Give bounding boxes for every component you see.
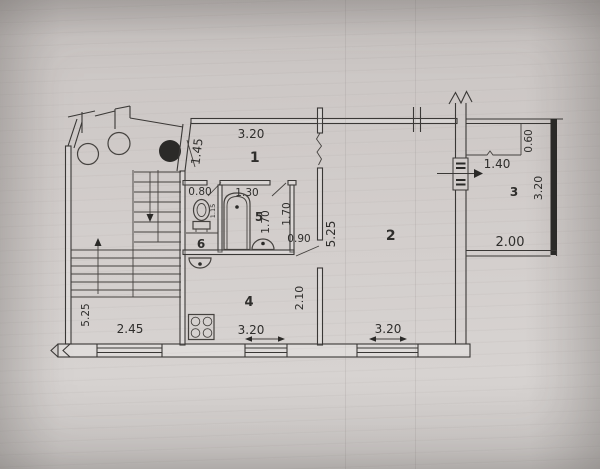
- room-number-wc: 6: [197, 237, 205, 251]
- wc-6: 0.80 1.15 6: [186, 183, 222, 253]
- top-wall: [191, 119, 457, 124]
- bathtub-icon: [224, 193, 250, 250]
- dim-corridor-door-width: 0.90: [287, 233, 310, 245]
- entrance-porch: [68, 106, 183, 165]
- room-number-hall: 1: [250, 150, 260, 166]
- bathroom-bottom-wall: [183, 250, 294, 255]
- room-number-kitchen: 4: [244, 295, 253, 310]
- dimension-arrow-icon: [245, 336, 285, 342]
- toilet-icon: [193, 200, 210, 233]
- paper-crease: [345, 0, 346, 469]
- left-wall: [66, 146, 72, 344]
- stove-icon: [189, 315, 215, 340]
- paper-crease: [415, 0, 416, 469]
- dim-wc-depth: 1.15: [209, 204, 217, 218]
- wall-segment: [318, 168, 323, 240]
- dim-hall-width: 3.20: [238, 127, 265, 141]
- dim-stairwell-width: 2.45: [117, 322, 144, 336]
- wc-bath-divider-wall: [218, 185, 222, 252]
- floor-plan-drawing: 5.25 2.45 3.20 1 1.45: [0, 0, 600, 469]
- dim-kitchen-depth: 2.10: [293, 286, 306, 311]
- scanned-floor-plan-photo: 5.25 2.45 3.20 1 1.45: [0, 0, 600, 469]
- wall-break-symbol: [449, 92, 472, 105]
- balcony-3: 0.60 1.40 3 3.20 2.00: [466, 119, 563, 256]
- garbage-chute-icon: [159, 140, 181, 162]
- balcony-wall: [456, 103, 467, 344]
- balcony-top-edge: [466, 119, 563, 124]
- balcony-bottom-edge: [466, 251, 557, 257]
- balcony-rail: [551, 119, 558, 255]
- wall-segment: [318, 268, 323, 345]
- hall-room-1: 3.20 1 1.45: [183, 127, 296, 185]
- dim-balcony-closet-depth: 0.60: [523, 129, 535, 152]
- ventilation-shaft-icon: [78, 144, 99, 165]
- dim-living-depth: 5.25: [324, 221, 338, 248]
- living-room-2: 2 5.25 3.20: [324, 221, 407, 342]
- porch-wall: [95, 106, 130, 129]
- dim-balcony-width-top: 1.40: [484, 157, 511, 171]
- dim-balcony-depth: 3.20: [532, 176, 545, 201]
- balcony-exit: [437, 158, 483, 190]
- wash-basin-icon: [252, 239, 274, 249]
- wall-break-symbol: [317, 133, 322, 165]
- dimension-arrow-icon: [369, 336, 407, 342]
- bathroom-door-leaf: [272, 183, 286, 196]
- dim-kitchen-width: 3.20: [238, 323, 265, 337]
- wall-segment: [318, 108, 323, 133]
- stairs: [71, 170, 181, 297]
- dim-stairwell-depth: 5.25: [80, 303, 92, 326]
- kitchen-sink-icon: [189, 258, 211, 268]
- balcony-closet: [466, 124, 521, 155]
- dim-bathroom-width: 1.30: [235, 187, 258, 199]
- porch-wall: [68, 119, 82, 148]
- dim-wc-width: 0.80: [188, 186, 211, 198]
- room-number-balcony: 3: [510, 185, 518, 199]
- porch-wall: [68, 111, 95, 133]
- dim-corridor-depth: 1.70: [281, 202, 293, 225]
- kitchen-4: 4 3.20 2.10: [189, 258, 307, 342]
- dim-balcony-width-bottom: 2.00: [496, 235, 525, 250]
- porch-wall: [130, 118, 183, 127]
- corridor: 1.70 0.90: [281, 202, 311, 245]
- dim-living-width: 3.20: [375, 322, 402, 336]
- door-leaf: [296, 246, 319, 256]
- stair-direction-arrow-icon: [95, 172, 154, 294]
- room-number-living: 2: [386, 228, 396, 244]
- dim-hall-depth: 1.45: [188, 137, 205, 165]
- ventilation-shaft-icon: [108, 133, 130, 155]
- dim-bathroom-depth: 1.70: [260, 210, 272, 233]
- bottom-wall: [58, 344, 470, 357]
- hall-bottom-wall: [183, 181, 296, 186]
